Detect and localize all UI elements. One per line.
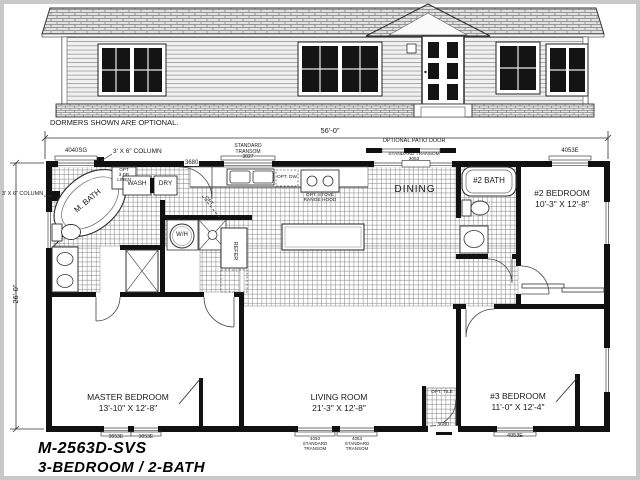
room-label-bedroom2: #2 BEDROOM 10'-3" X 12'-8" — [519, 188, 605, 209]
door-label-back: 3680 — [184, 160, 199, 166]
transom-label-4053-b: 4053 STANDARD TRANSOM — [337, 436, 377, 452]
room-label-bedroom3: #3 BEDROOM 11'-0" X 12'-4" — [470, 391, 566, 412]
plan-subtitle: 3-BEDROOM / 2-BATH — [38, 459, 205, 476]
dim-width: 56'-0" — [300, 127, 360, 135]
door-label-front: 3680 — [436, 423, 450, 429]
refrigerator-label: REFER — [231, 239, 237, 263]
master-vanity — [52, 247, 78, 292]
window-label-4040sg: 4040SG — [55, 148, 97, 154]
dryer-label: DRY — [154, 180, 177, 187]
bedroom2-closet-doors — [522, 284, 604, 292]
elevation-drawing — [42, 4, 604, 117]
column-label-top: 3' X 6" COLUMN — [113, 148, 162, 155]
patio-door-label: OPTIONAL PATIO DOOR — [369, 139, 459, 145]
bath2-toilet — [462, 200, 489, 216]
room-label-living-room: LIVING ROOM 21'-3" X 12'-8" — [289, 392, 389, 413]
column-label-left: 3' X 6" COLUMN — [2, 192, 43, 198]
elevation-window-2 — [298, 42, 382, 96]
bath2-vanity — [460, 226, 488, 253]
window-label-4053e-bottom: 4053E — [494, 434, 536, 440]
room-label-master-bedroom: MASTER BEDROOM 13'-10" X 12'-8" — [78, 392, 178, 413]
model-number: M-2563D-SVS — [38, 440, 147, 458]
opt-tile-label: OPT. TILE — [424, 390, 460, 395]
elevation-window-4 — [546, 44, 588, 96]
elevation-window-3 — [496, 42, 540, 94]
elevation-caption: DORMERS SHOWN ARE OPTIONAL. — [50, 119, 178, 127]
dim-depth: 26'-0" — [12, 269, 20, 319]
washer-label: WASH — [123, 180, 151, 187]
patio-transom-label: STANDARD TRANSOM 3053 — [377, 152, 451, 162]
room-label-dining: DINING — [385, 185, 445, 196]
transom-label-3027: STANDARD TRANSOM 3027 — [228, 144, 268, 161]
floorplan-sheet: DORMERS SHOWN ARE OPTIONAL. 56'-0" 26'-0… — [0, 0, 640, 480]
room-label-bath2: #2 BATH — [462, 177, 516, 186]
window-label-4053e-top: 4053E — [549, 148, 591, 154]
elevation-window-1 — [98, 44, 166, 96]
master-toilet — [52, 224, 81, 241]
master-shower — [126, 250, 158, 292]
transom-label-4053-a: 4053 STANDARD TRANSOM — [295, 436, 335, 452]
water-heater-label: W/H — [170, 232, 194, 238]
range-label: OPT. STOVE RANGE HOOD — [300, 193, 340, 203]
dishwasher-label: OPT. DW — [274, 175, 300, 180]
kitchen-island — [282, 224, 364, 250]
